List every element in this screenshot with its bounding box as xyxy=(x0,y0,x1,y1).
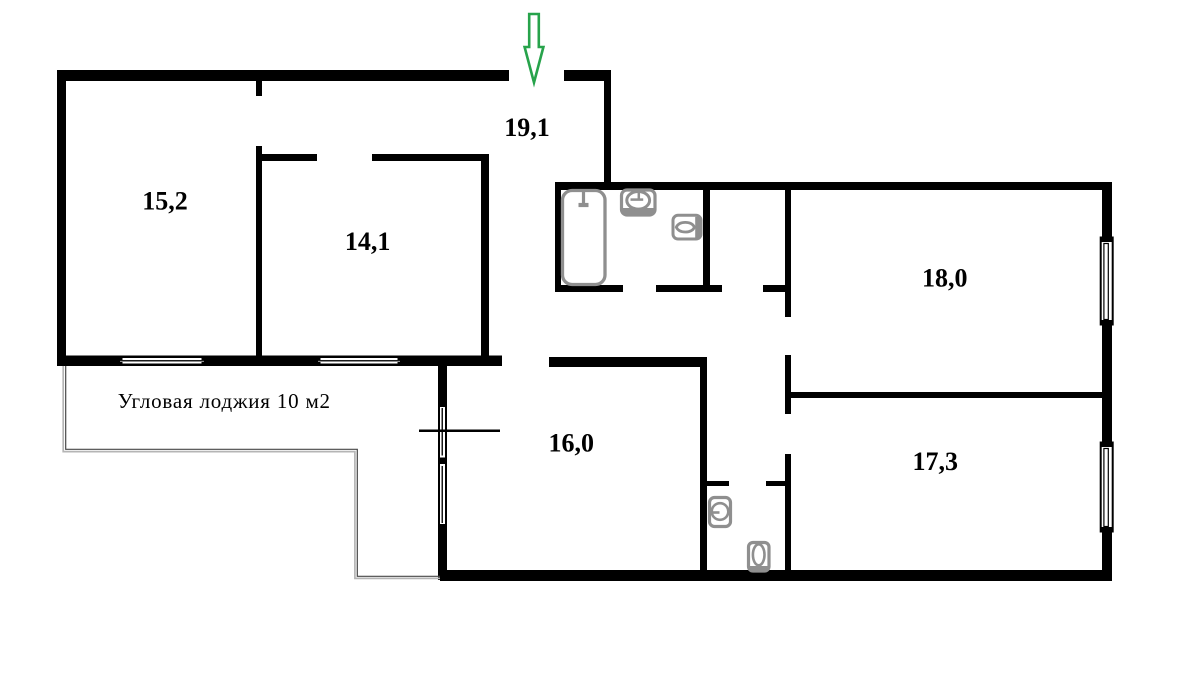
svg-text:18,0: 18,0 xyxy=(922,264,968,293)
svg-text:Угловая лоджия 10 м2: Угловая лоджия 10 м2 xyxy=(118,389,331,413)
svg-text:16,0: 16,0 xyxy=(548,429,594,458)
svg-text:14,1: 14,1 xyxy=(345,227,391,256)
svg-text:19,1: 19,1 xyxy=(504,113,550,142)
svg-text:17,3: 17,3 xyxy=(912,447,958,476)
svg-text:15,2: 15,2 xyxy=(142,187,188,216)
